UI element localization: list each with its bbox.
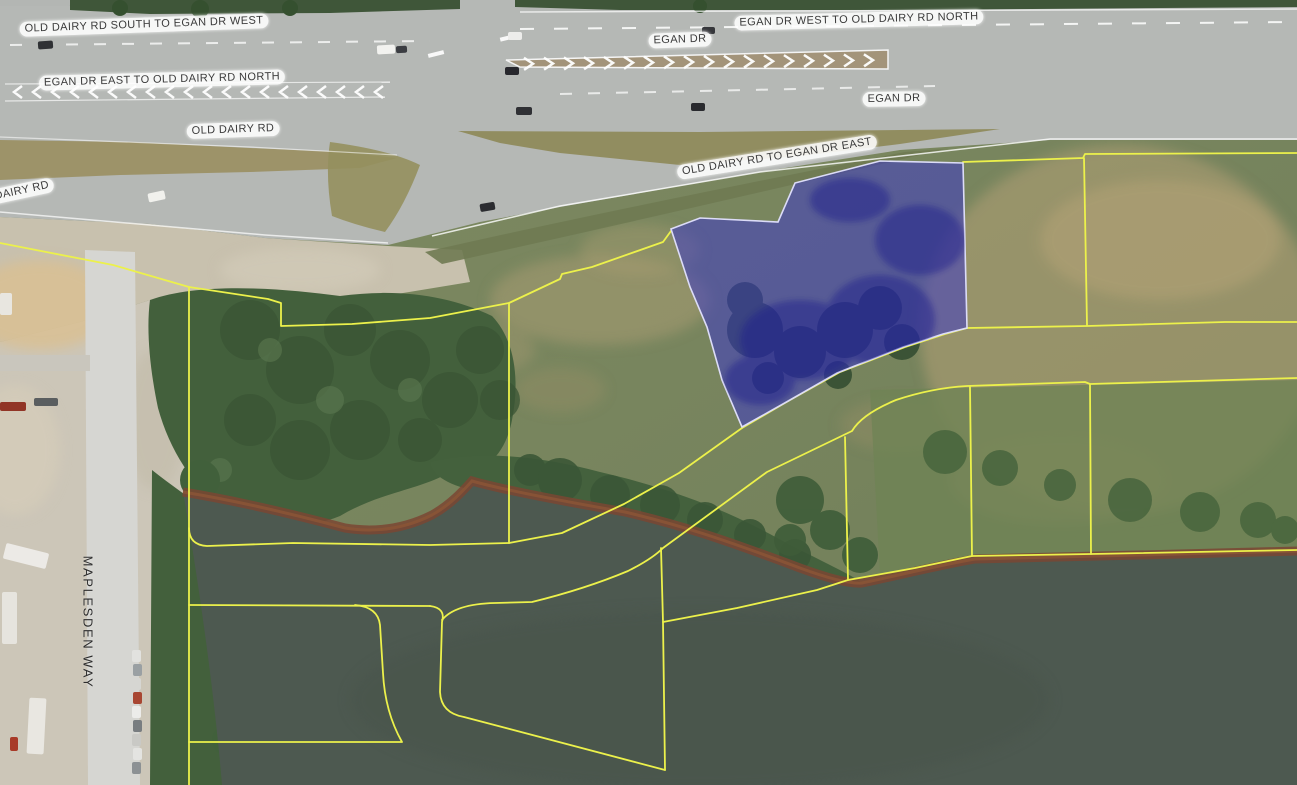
maplesden-way-road <box>85 250 140 785</box>
parked-cars <box>132 650 142 774</box>
map-canvas <box>0 0 1297 785</box>
aerial-map-viewport[interactable]: OLD DAIRY RD SOUTH TO EGAN DR WEST EGAN … <box>0 0 1297 785</box>
